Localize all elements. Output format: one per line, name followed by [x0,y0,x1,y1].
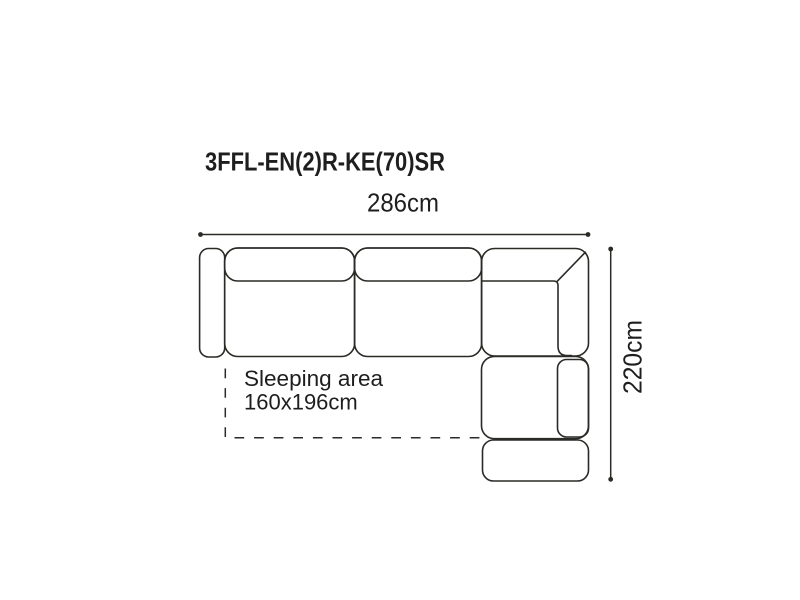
svg-text:3FFL-EN(2)R-KE(70)SR: 3FFL-EN(2)R-KE(70)SR [205,147,445,177]
svg-text:220cm: 220cm [618,320,648,394]
svg-text:286cm: 286cm [367,188,439,218]
svg-text:160x196cm: 160x196cm [244,390,358,415]
svg-text:Sleeping area: Sleeping area [244,366,384,391]
